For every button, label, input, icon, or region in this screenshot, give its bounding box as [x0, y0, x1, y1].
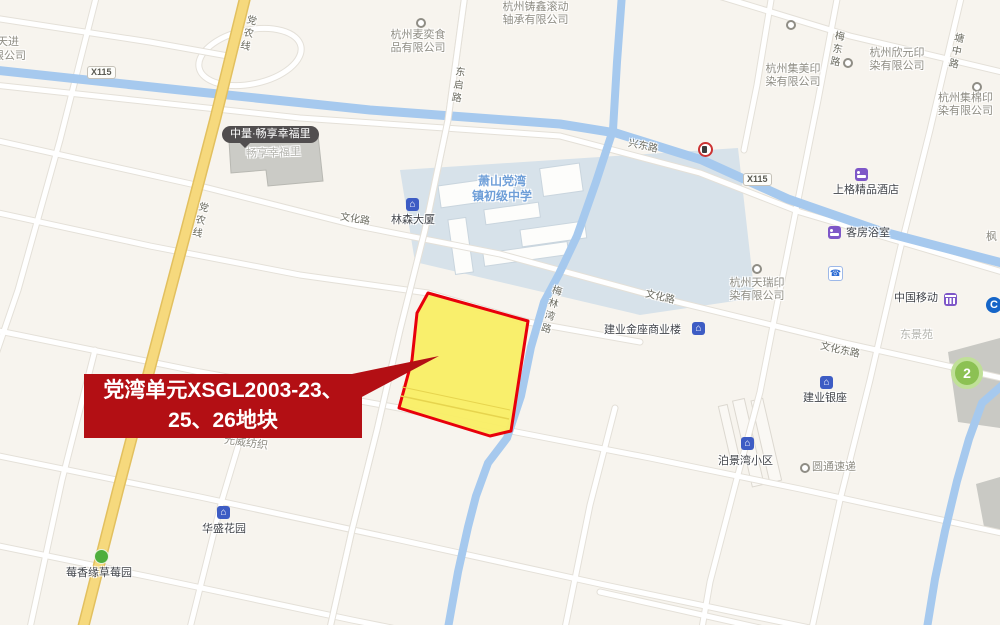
poi-dot-jimei[interactable]	[786, 20, 796, 30]
poi-school[interactable]: 萧山党湾镇初级中学	[447, 174, 557, 204]
poi-jimei[interactable]: 杭州集美印染有限公司	[748, 63, 838, 89]
map-features	[0, 0, 1000, 625]
building-icon-bojingwan[interactable]	[741, 437, 754, 450]
building-icon-linsen[interactable]	[406, 198, 419, 211]
poi-linsen[interactable]: 林森大厦	[391, 214, 435, 227]
hotel-icon-kefang[interactable]	[828, 226, 841, 239]
poi-zhuxin[interactable]: 杭州铸鑫滚动轴承有限公司	[488, 1, 583, 27]
poi-jianyejinzuo[interactable]: 建业金座商业楼	[604, 324, 681, 337]
poi-huasheng[interactable]: 华盛花园	[202, 523, 246, 536]
road-badge-x115-west: X115	[87, 66, 116, 79]
bank-icon-yidong[interactable]	[944, 293, 957, 306]
telecom-icon[interactable]	[828, 266, 843, 281]
building-icon-jinzuo[interactable]	[692, 322, 705, 335]
poi-tianrui[interactable]: 杭州天瑞印染有限公司	[712, 277, 802, 303]
poi-yuantong[interactable]: 圆通速递	[812, 461, 856, 474]
poi-changxiang: 畅享幸福里	[246, 146, 301, 161]
metro-line2-badge[interactable]: 2	[951, 357, 983, 389]
poi-yidong[interactable]: 中国移动	[894, 292, 938, 305]
annotation-line1: 党湾单元XSGL2003-23、	[84, 376, 362, 406]
poi-jianyeyinzuo[interactable]: 建业银座	[803, 392, 847, 405]
strawberry-icon[interactable]	[94, 549, 109, 564]
poi-dot-maiyi[interactable]	[416, 18, 426, 28]
poi-tooltip-zhongliang[interactable]: 中量·畅享幸福里	[222, 126, 319, 143]
poi-dot-jimian[interactable]	[972, 82, 982, 92]
poi-jimian[interactable]: 杭州集棉印染有限公司	[938, 92, 1000, 118]
road-badge-x115-east: X115	[743, 173, 772, 186]
map-canvas[interactable]: 党农线 党农线 X115 X115 东启路 兴东路 梅东路 塘中路 文化路 文化…	[0, 0, 1000, 625]
poi-bojingwan[interactable]: 泊景湾小区	[718, 455, 773, 468]
annotation-line2: 25、26地块	[84, 406, 362, 436]
poi-dongjingyuan: 东景苑	[900, 329, 933, 342]
camera-icon[interactable]	[698, 142, 713, 157]
poi-maiyi[interactable]: 杭州麦奕食品有限公司	[373, 29, 463, 55]
poi-xinyuan[interactable]: 杭州欣元印染有限公司	[852, 47, 942, 73]
parcel-annotation-box: 党湾单元XSGL2003-23、 25、26地块	[84, 374, 362, 438]
poi-dot-tianrui[interactable]	[752, 264, 762, 274]
poi-ruitianjin-line2[interactable]: 有限公司	[0, 50, 26, 63]
poi-shangge[interactable]: 上格精品酒店	[833, 184, 899, 197]
bank-c-logo-icon[interactable]: C	[986, 297, 1000, 313]
poi-meixiangyuan[interactable]: 莓香缘草莓园	[66, 567, 132, 580]
poi-kefang[interactable]: 客房浴室	[846, 227, 890, 240]
building-icon-huasheng[interactable]	[217, 506, 230, 519]
poi-feng-partial: 枫	[986, 231, 997, 244]
poi-dot-yuantong[interactable]	[800, 463, 810, 473]
hotel-icon-shangge[interactable]	[855, 168, 868, 181]
poi-ruitianjin-line1[interactable]: 瑞天进	[0, 36, 19, 49]
building-icon-yinzuo[interactable]	[820, 376, 833, 389]
